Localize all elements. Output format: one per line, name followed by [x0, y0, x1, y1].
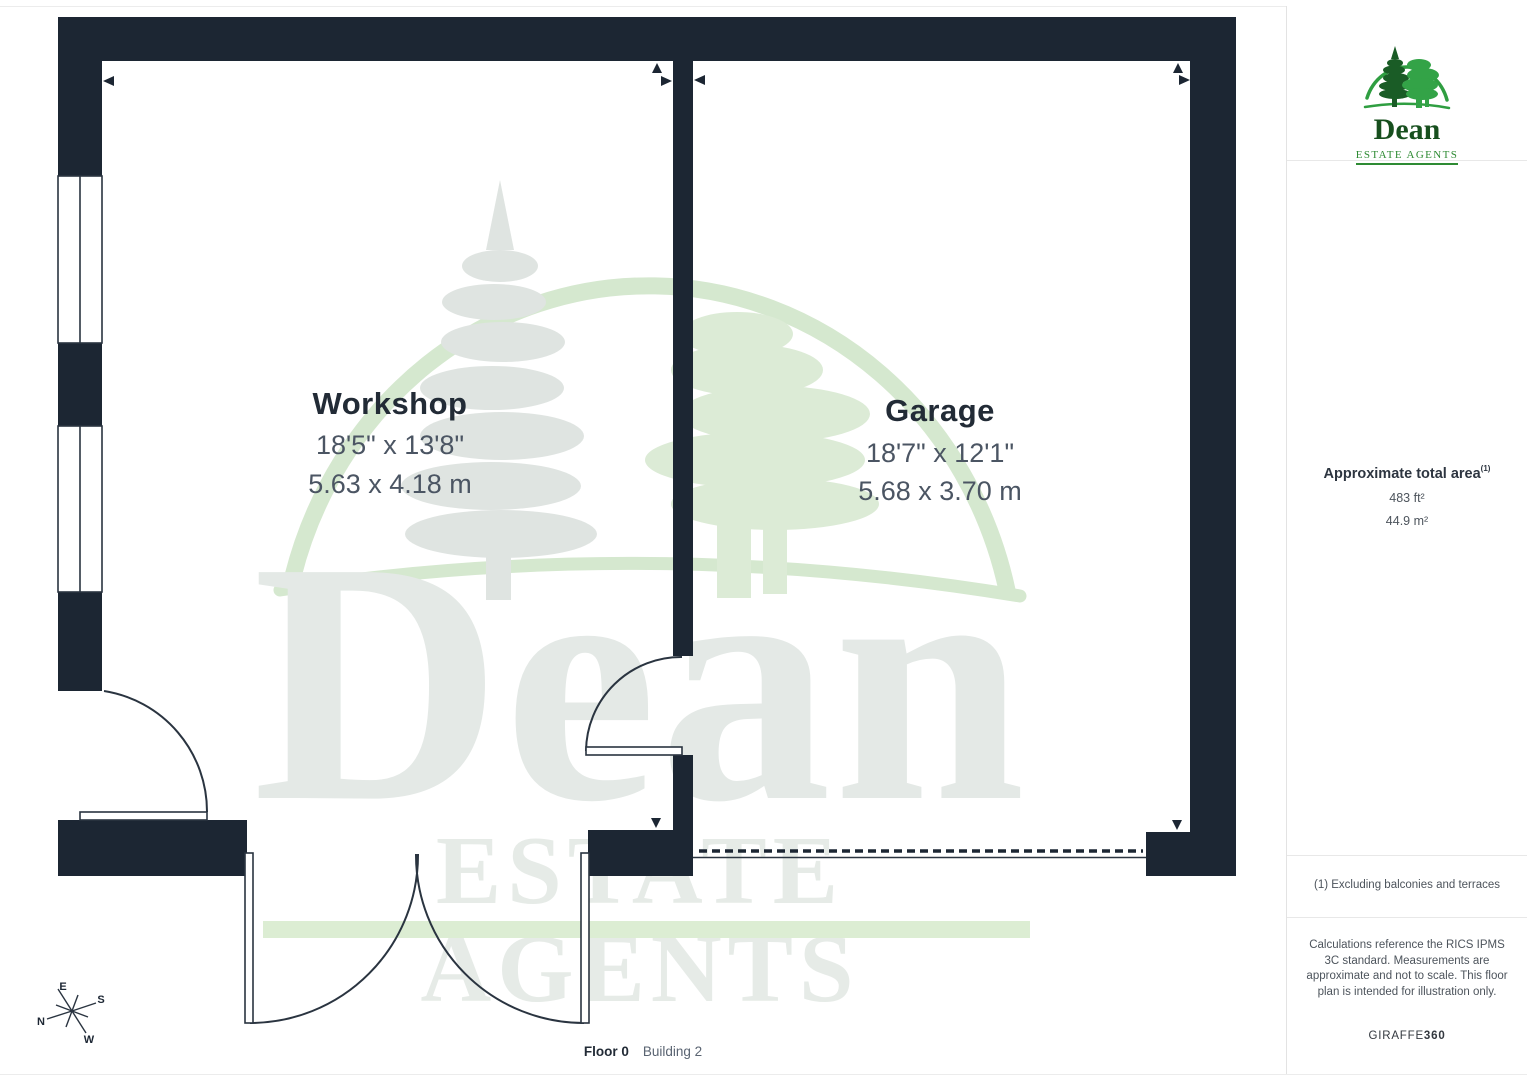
sidebar-divider [1287, 917, 1527, 918]
sidebar-divider [1287, 160, 1527, 161]
top-wall [58, 17, 1236, 61]
entry-door-leaf [80, 812, 207, 820]
left-wall-middle [58, 343, 102, 426]
entry-door-swing-arc [104, 691, 207, 812]
arrow-right-icon [1179, 75, 1190, 85]
floorplan-page: Dean ESTATE AGENTS [0, 0, 1527, 1080]
interior-door-leaf [586, 747, 682, 755]
area-imperial-value: 483 ft² [1287, 491, 1527, 505]
floorplan-drawing [0, 0, 1286, 1080]
double-door-right-swing-arc [416, 854, 584, 1023]
left-wall-upper [58, 17, 102, 176]
plan-footer: Floor 0Building 2 [0, 1044, 1286, 1059]
left-wall-lower [58, 592, 102, 691]
logo-oak-tree [1402, 59, 1439, 108]
compass-spokes [47, 989, 96, 1033]
arrow-right-icon [661, 76, 672, 86]
room-dimensions-metric: 5.63 x 4.18 m [240, 469, 540, 500]
total-area-block: Approximate total area(1) 483 ft² 44.9 m… [1287, 464, 1527, 528]
logo-conifer-tree [1379, 46, 1411, 107]
agency-tagline: ESTATE AGENTS [1356, 149, 1459, 165]
provider-brand: GIRAFFE360 [1287, 1030, 1527, 1042]
right-wall [1190, 17, 1236, 876]
compass-rose: E S N W [28, 962, 120, 1048]
double-door-left-swing-arc [250, 854, 418, 1023]
room-name-workshop: Workshop [240, 386, 540, 422]
provider-suffix: 360 [1424, 1030, 1446, 1042]
logo-ground [1365, 104, 1449, 108]
agency-name: Dean [1287, 115, 1527, 145]
double-door-right-leaf [581, 853, 589, 1023]
arrow-down-icon [651, 818, 661, 828]
compass-north-label: N [37, 1016, 45, 1028]
arrow-up-icon [652, 63, 662, 73]
info-sidebar: Dean ESTATE AGENTS Approximate total are… [1286, 6, 1527, 1074]
bottom-left-wall-block [58, 820, 247, 876]
disclaimer-text: Calculations reference the RICS IPMS 3C … [1305, 938, 1509, 1000]
double-door-left-leaf [245, 853, 253, 1023]
room-dimensions-metric: 5.68 x 3.70 m [790, 476, 1090, 507]
bottom-right-wall-block [1146, 832, 1236, 876]
room-dimensions-imperial: 18'5" x 13'8" [240, 430, 540, 461]
room-name-garage: Garage [790, 393, 1090, 429]
agency-logo-graphic [1357, 34, 1457, 114]
compass-east-label: E [59, 981, 66, 993]
area-title-text: Approximate total area [1324, 466, 1481, 482]
sidebar-divider [1287, 855, 1527, 856]
room-dimensions-imperial: 18'7" x 12'1" [790, 438, 1090, 469]
bottom-center-wall-block [588, 830, 693, 876]
arrow-left-icon [103, 76, 114, 86]
interior-door-swing-arc [586, 657, 682, 751]
area-title: Approximate total area(1) [1287, 464, 1527, 482]
exclusions-footnote: (1) Excluding balconies and terraces [1297, 878, 1517, 893]
area-footnote-marker: (1) [1481, 464, 1491, 473]
area-metric-value: 44.9 m² [1287, 514, 1527, 528]
interior-wall-lower [673, 755, 693, 830]
provider-name: GIRAFFE [1368, 1030, 1423, 1042]
arrow-up-icon [1173, 63, 1183, 73]
interior-wall-upper [673, 61, 693, 656]
agency-logo: Dean ESTATE AGENTS [1287, 34, 1527, 165]
compass-south-label: S [97, 994, 104, 1006]
arrow-left-icon [694, 75, 705, 85]
arrow-down-icon [1172, 820, 1182, 830]
building-label: Building 2 [643, 1044, 702, 1059]
floor-label: Floor 0 [584, 1044, 629, 1059]
